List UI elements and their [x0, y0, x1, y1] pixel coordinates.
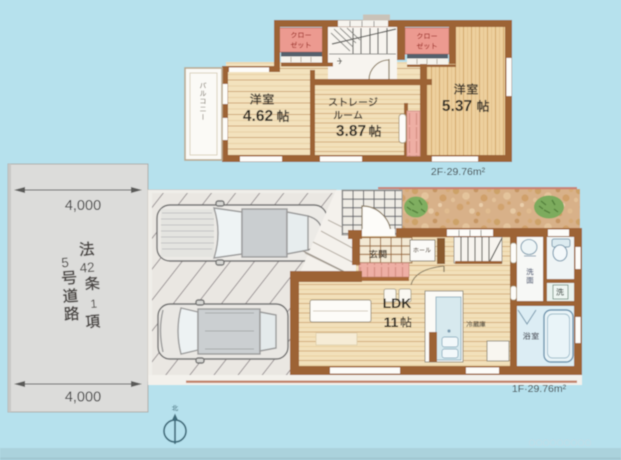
- svg-text:1: 1: [90, 296, 98, 310]
- svg-text:1F·29.76m²: 1F·29.76m²: [512, 383, 567, 395]
- svg-text:42: 42: [79, 260, 95, 276]
- svg-text:5: 5: [61, 255, 70, 270]
- svg-text:4,000: 4,000: [65, 390, 101, 406]
- svg-text:4,000: 4,000: [65, 198, 101, 214]
- svg-text:LDK: LDK: [383, 295, 412, 311]
- svg-text:3.87: 3.87: [336, 123, 366, 140]
- svg-text:2F·29.76m²: 2F·29.76m²: [431, 166, 486, 178]
- svg-text:11: 11: [384, 314, 399, 330]
- svg-text:OOOOOOOOO: OOOOOOOOO: [528, 438, 591, 448]
- svg-text:4.62: 4.62: [243, 108, 273, 125]
- svg-text:5.37: 5.37: [442, 98, 472, 115]
